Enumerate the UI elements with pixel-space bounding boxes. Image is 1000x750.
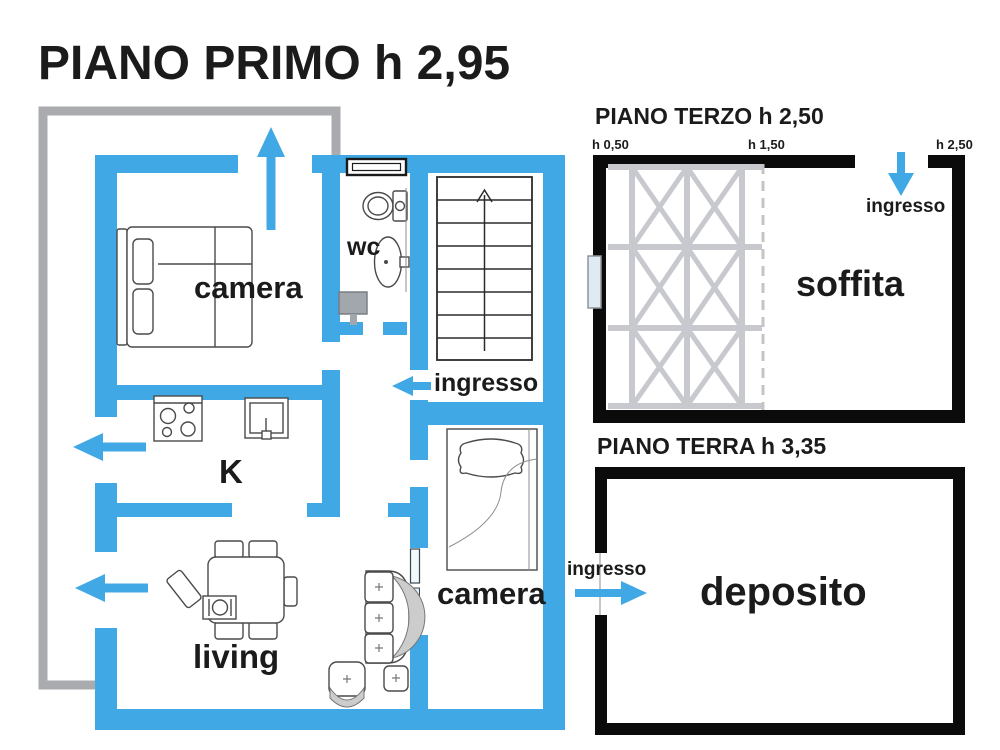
toilet-icon xyxy=(363,191,407,221)
kitchen-window-arrow-icon xyxy=(73,433,146,461)
room-label-wc: wc xyxy=(347,235,380,260)
height-label-mid: h 1,50 xyxy=(748,138,785,151)
terra-ingresso-arrow-icon xyxy=(575,581,647,605)
primo-title: PIANO PRIMO h 2,95 xyxy=(38,40,510,88)
height-label-right: h 2,50 xyxy=(936,138,973,151)
terra-ingresso-label: ingresso xyxy=(567,560,646,579)
single-bed-icon xyxy=(447,429,537,570)
terzo-window-icon xyxy=(588,256,601,308)
window-icon xyxy=(347,159,406,175)
room-label-camera-2: camera xyxy=(437,578,546,609)
terzo-ingresso-label: ingresso xyxy=(866,197,945,216)
room-label-living: living xyxy=(193,640,279,673)
floorplan-canvas: PIANO PRIMO h 2,95 camera wc ingresso K … xyxy=(0,0,1000,750)
terzo-ingresso-arrow-icon xyxy=(888,152,914,196)
balcony-arrow-icon xyxy=(257,127,285,230)
height-label-left: h 0,50 xyxy=(592,138,629,151)
room-label-ingresso: ingresso xyxy=(434,371,538,396)
stove-icon xyxy=(154,396,202,441)
boiler-icon xyxy=(339,292,367,325)
stairs-icon xyxy=(437,177,532,360)
kitchen-sink-icon xyxy=(245,398,288,439)
room-label-kitchen: K xyxy=(219,455,243,488)
terzo-title: PIANO TERZO h 2,50 xyxy=(595,105,824,128)
room-label-soffita: soffita xyxy=(796,266,904,302)
room-label-deposito: deposito xyxy=(700,572,867,612)
terra-title: PIANO TERRA h 3,35 xyxy=(597,435,826,458)
ingresso-arrow-icon xyxy=(392,376,431,396)
roof-truss-grid xyxy=(608,164,763,410)
dining-table-icon xyxy=(166,541,297,639)
living-window-arrow-icon xyxy=(75,574,148,602)
room-label-camera-1: camera xyxy=(194,272,303,303)
